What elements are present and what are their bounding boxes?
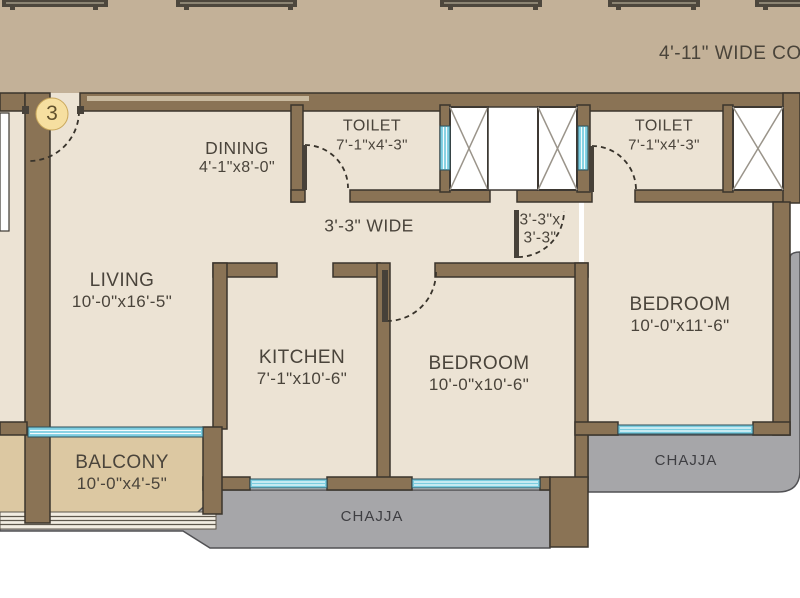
- toilet-left-label: TOILET 7'-1"x4'-3": [336, 118, 408, 155]
- wall-left-outer: [25, 93, 50, 523]
- window-bedroom-mid: [412, 479, 540, 488]
- wall-step-detail: [87, 96, 309, 101]
- bedroom-mid-label: BEDROOM 10'-0"x10'-6": [429, 353, 530, 395]
- unit-number: 3: [46, 102, 58, 126]
- wall-living-kitchen: [213, 263, 227, 429]
- living-label: LIVING 10'-0"x16'-5": [72, 270, 172, 312]
- window-bedroom-right: [618, 425, 753, 434]
- window-shaft-left: [440, 126, 450, 170]
- chajja-bottom-label: CHAJJA: [341, 508, 404, 526]
- window-kitchen: [250, 479, 327, 488]
- lobby-label: 3'-3"x 3'-3": [519, 212, 560, 249]
- wall-column-chajja: [550, 477, 588, 547]
- door-leaf-toilet-right: [589, 146, 594, 192]
- door-leaf-bedroom-mid: [382, 270, 388, 322]
- wall-bedrooms-divider: [575, 263, 588, 479]
- chajja-right-label: CHAJJA: [655, 452, 718, 470]
- wall-toilet-right-left: [723, 105, 733, 192]
- door-leaf-lobby: [514, 210, 519, 258]
- window-living: [28, 427, 203, 437]
- door-jamb-entrance-right: [77, 106, 84, 114]
- shaft-gap: [488, 107, 538, 190]
- wall-top-left: [0, 93, 25, 111]
- window-neighbor-left: [0, 113, 9, 231]
- dining-label: DINING 4'-1"x8'-0": [199, 138, 275, 178]
- door-leaf-toilet-left: [302, 145, 307, 190]
- corridor-label: 4'-11" WIDE COR: [659, 43, 800, 65]
- wall-toilet-left-side: [291, 105, 303, 202]
- bedroom-right-label: BEDROOM 10'-0"x11'-6": [630, 294, 731, 336]
- wall-neighbor-stub: [0, 422, 27, 435]
- toilet-right-label: TOILET 7'-1"x4'-3": [628, 118, 700, 155]
- door-jamb-entrance-left: [22, 106, 29, 114]
- floor-plan: 4'-11" WIDE COR 3 DINING 4'-1"x8'-0" TOI…: [0, 0, 800, 598]
- wall-bedroom-right-outer: [773, 202, 790, 435]
- passage-label: 3'-3" WIDE: [324, 216, 413, 237]
- kitchen-label: KITCHEN 7'-1"x10'-6": [257, 347, 347, 389]
- window-shaft-right: [578, 126, 588, 170]
- wall-balcony-right: [203, 427, 222, 514]
- wall-right-top: [783, 93, 800, 203]
- balcony-label: BALCONY 10'-0"x4'-5": [75, 452, 169, 494]
